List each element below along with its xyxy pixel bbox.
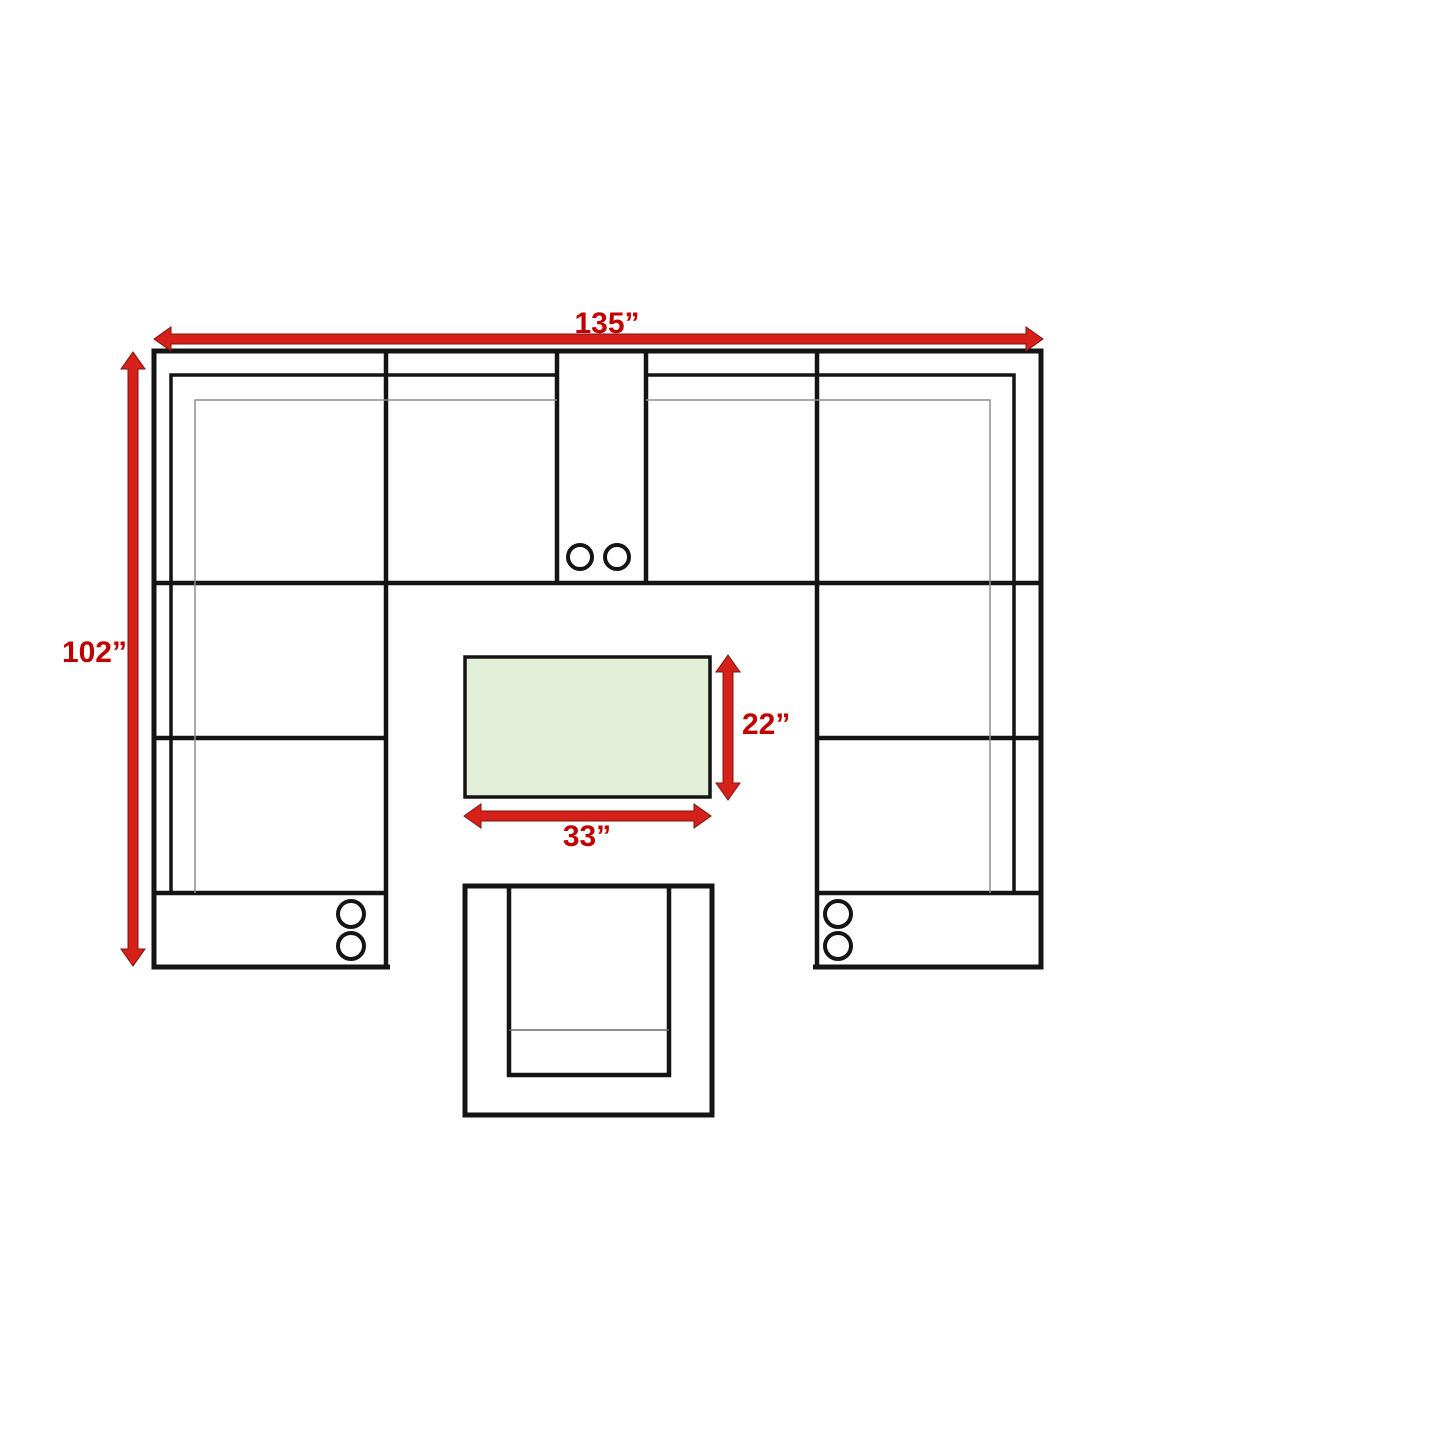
cup-holder-icon [605,545,629,569]
cup-holder-icon [338,901,364,927]
width-dimension-label: 135” [574,307,639,340]
table-depth-dimension-label: 22” [742,708,790,741]
cup-holder-icon [825,901,851,927]
cup-holder-icon [825,933,851,959]
armchair [465,886,712,1115]
table-width-dimension-label: 33” [563,820,611,853]
furniture-layout-diagram: 135” 102” 22” 33” [0,0,1445,1445]
coffee-table [465,657,710,797]
cup-holder-icon [568,545,592,569]
depth-dimension-label: 102” [62,636,127,669]
cup-holder-icon [338,933,364,959]
armchair-outline [465,886,712,1115]
floor-plan-canvas: 135” 102” 22” 33” [0,0,1445,1445]
